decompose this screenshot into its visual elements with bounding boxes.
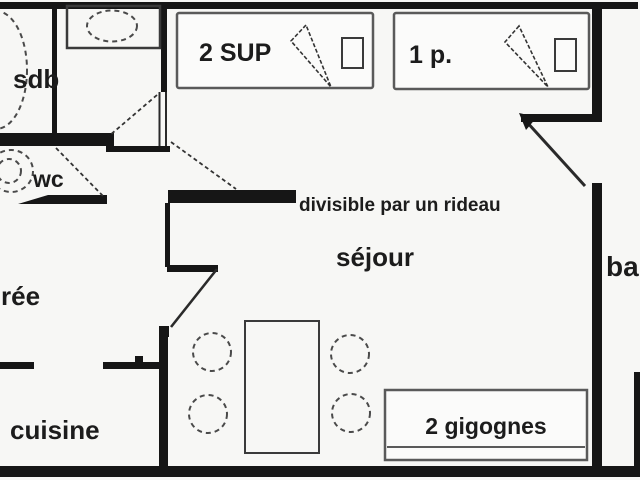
sink-basin-icon (87, 11, 137, 42)
wall-right-lower (592, 183, 602, 466)
bed-double-group: 2 SUP (177, 13, 373, 88)
chair-icon (331, 335, 369, 373)
wall-kitchen-right (159, 335, 168, 466)
wall-bathroom-right (161, 8, 167, 92)
chair-icon (189, 395, 227, 433)
wc-label: wc (32, 166, 64, 192)
chair-icon (193, 333, 231, 371)
floor-plan: 2 SUP 1 p. 2 gigognes sdb wc rée cuisine… (0, 0, 640, 480)
entrance-door-leaf (171, 269, 217, 327)
wall-kitchen-divider-left (0, 362, 34, 369)
bed-double-label: 2 SUP (199, 39, 271, 67)
wall-hall-vertical (165, 203, 170, 267)
bathroom-label: sdb (13, 64, 59, 94)
wall-bathroom-bottom (0, 133, 114, 146)
balcony-railing (634, 372, 640, 466)
wall-hall-jut (167, 265, 218, 272)
floor-plan-drawing: 2 SUP 1 p. 2 gigognes sdb wc rée cuisine… (0, 0, 640, 480)
toilet-icon (0, 150, 33, 192)
living-room-label: séjour (336, 242, 414, 272)
bed-single-group: 1 p. (394, 13, 589, 89)
entrance-label: rée (1, 281, 40, 311)
balcony-label: ba (606, 251, 639, 282)
wall-right-upper (592, 2, 602, 122)
toilet-bowl-icon (0, 159, 21, 183)
bed-single-label: 1 p. (409, 41, 452, 69)
wall-bathroom-step (106, 146, 170, 152)
sofa-beds-label: 2 gigognes (425, 413, 546, 439)
sofa-beds-group: 2 gigognes (385, 390, 587, 460)
kitchen-label: cuisine (10, 415, 100, 445)
wall-curtain-stub (168, 190, 296, 203)
table-icon (245, 321, 319, 453)
wall-bottom (0, 466, 640, 477)
balcony-door-leaf (525, 120, 585, 186)
wall-divider-notch (135, 356, 143, 362)
living-door-swing (171, 142, 236, 189)
bathroom-door-swing (109, 95, 157, 136)
wall-kitchen-divider-right (103, 362, 161, 369)
chair-icon (332, 394, 370, 432)
wall-wc-pointed (18, 195, 107, 204)
curtain-note-label: divisible par un rideau (299, 195, 501, 216)
